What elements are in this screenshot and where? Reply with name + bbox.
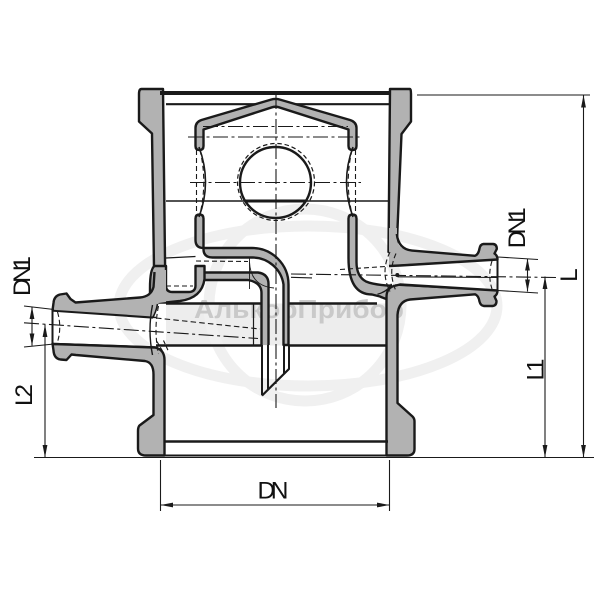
svg-text:DN: DN — [258, 478, 289, 505]
svg-text:L2: L2 — [11, 384, 38, 406]
svg-text:L: L — [556, 268, 583, 282]
svg-text:DN1: DN1 — [504, 207, 531, 248]
svg-text:АлькорПрибор: АлькорПрибор — [194, 294, 404, 324]
svg-text:DN1: DN1 — [9, 256, 36, 296]
svg-text:L1: L1 — [523, 359, 550, 381]
